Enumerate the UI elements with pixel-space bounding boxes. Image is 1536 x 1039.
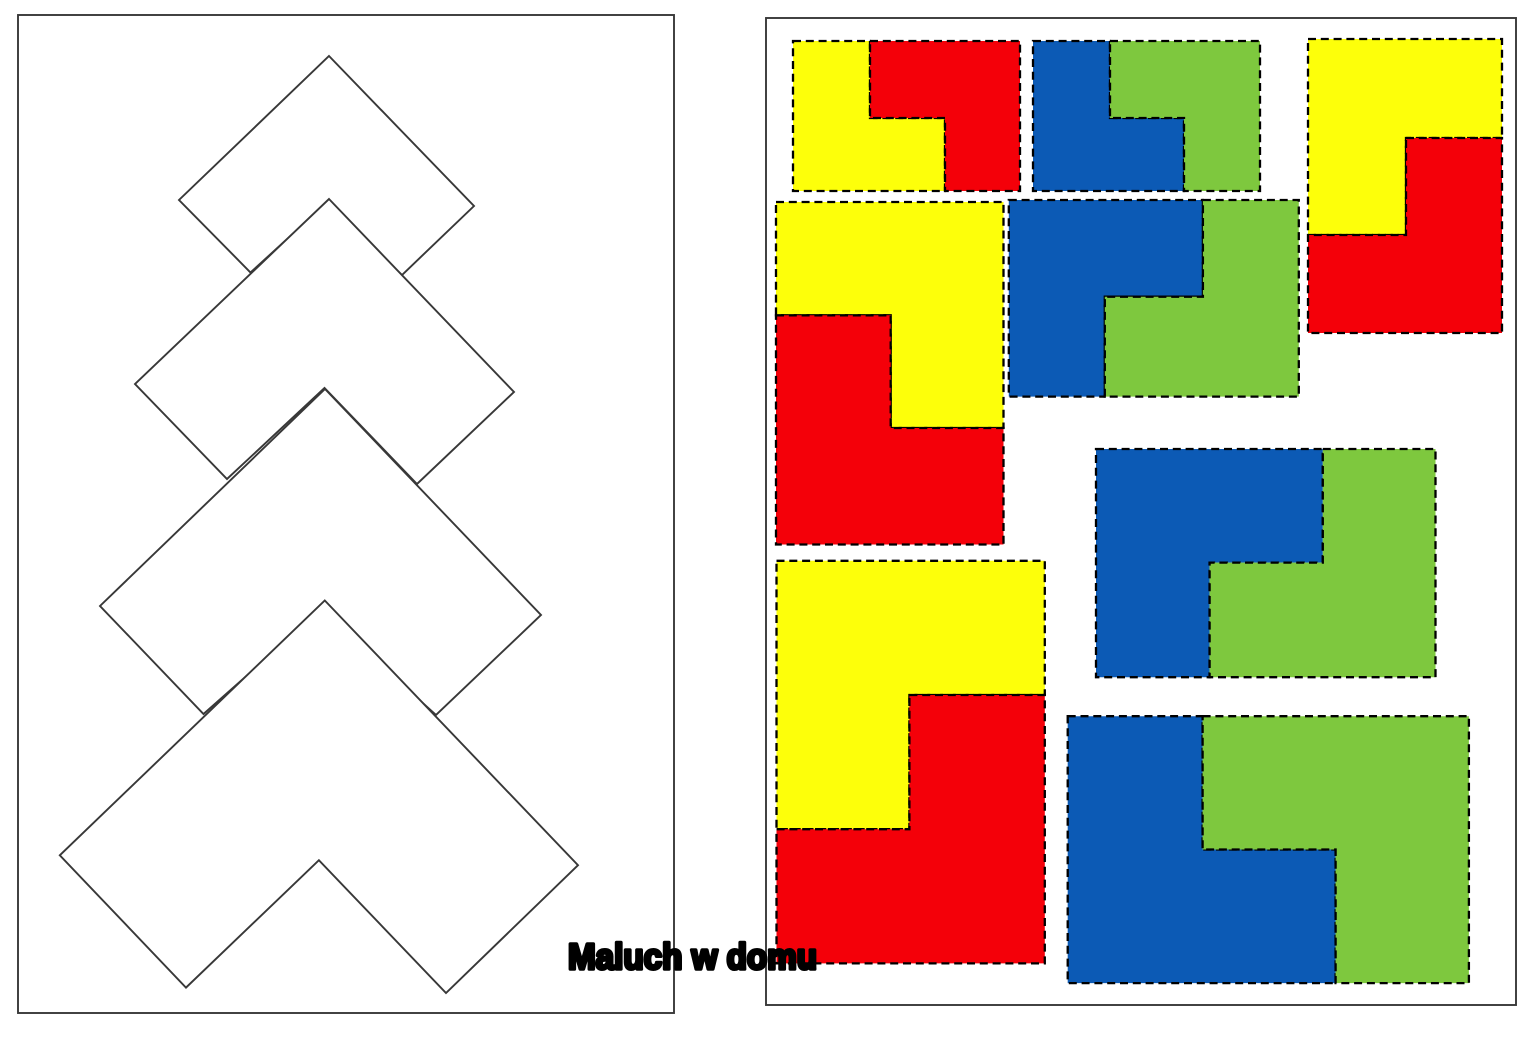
svg-text:Maluch w domu: Maluch w domu xyxy=(568,936,817,977)
